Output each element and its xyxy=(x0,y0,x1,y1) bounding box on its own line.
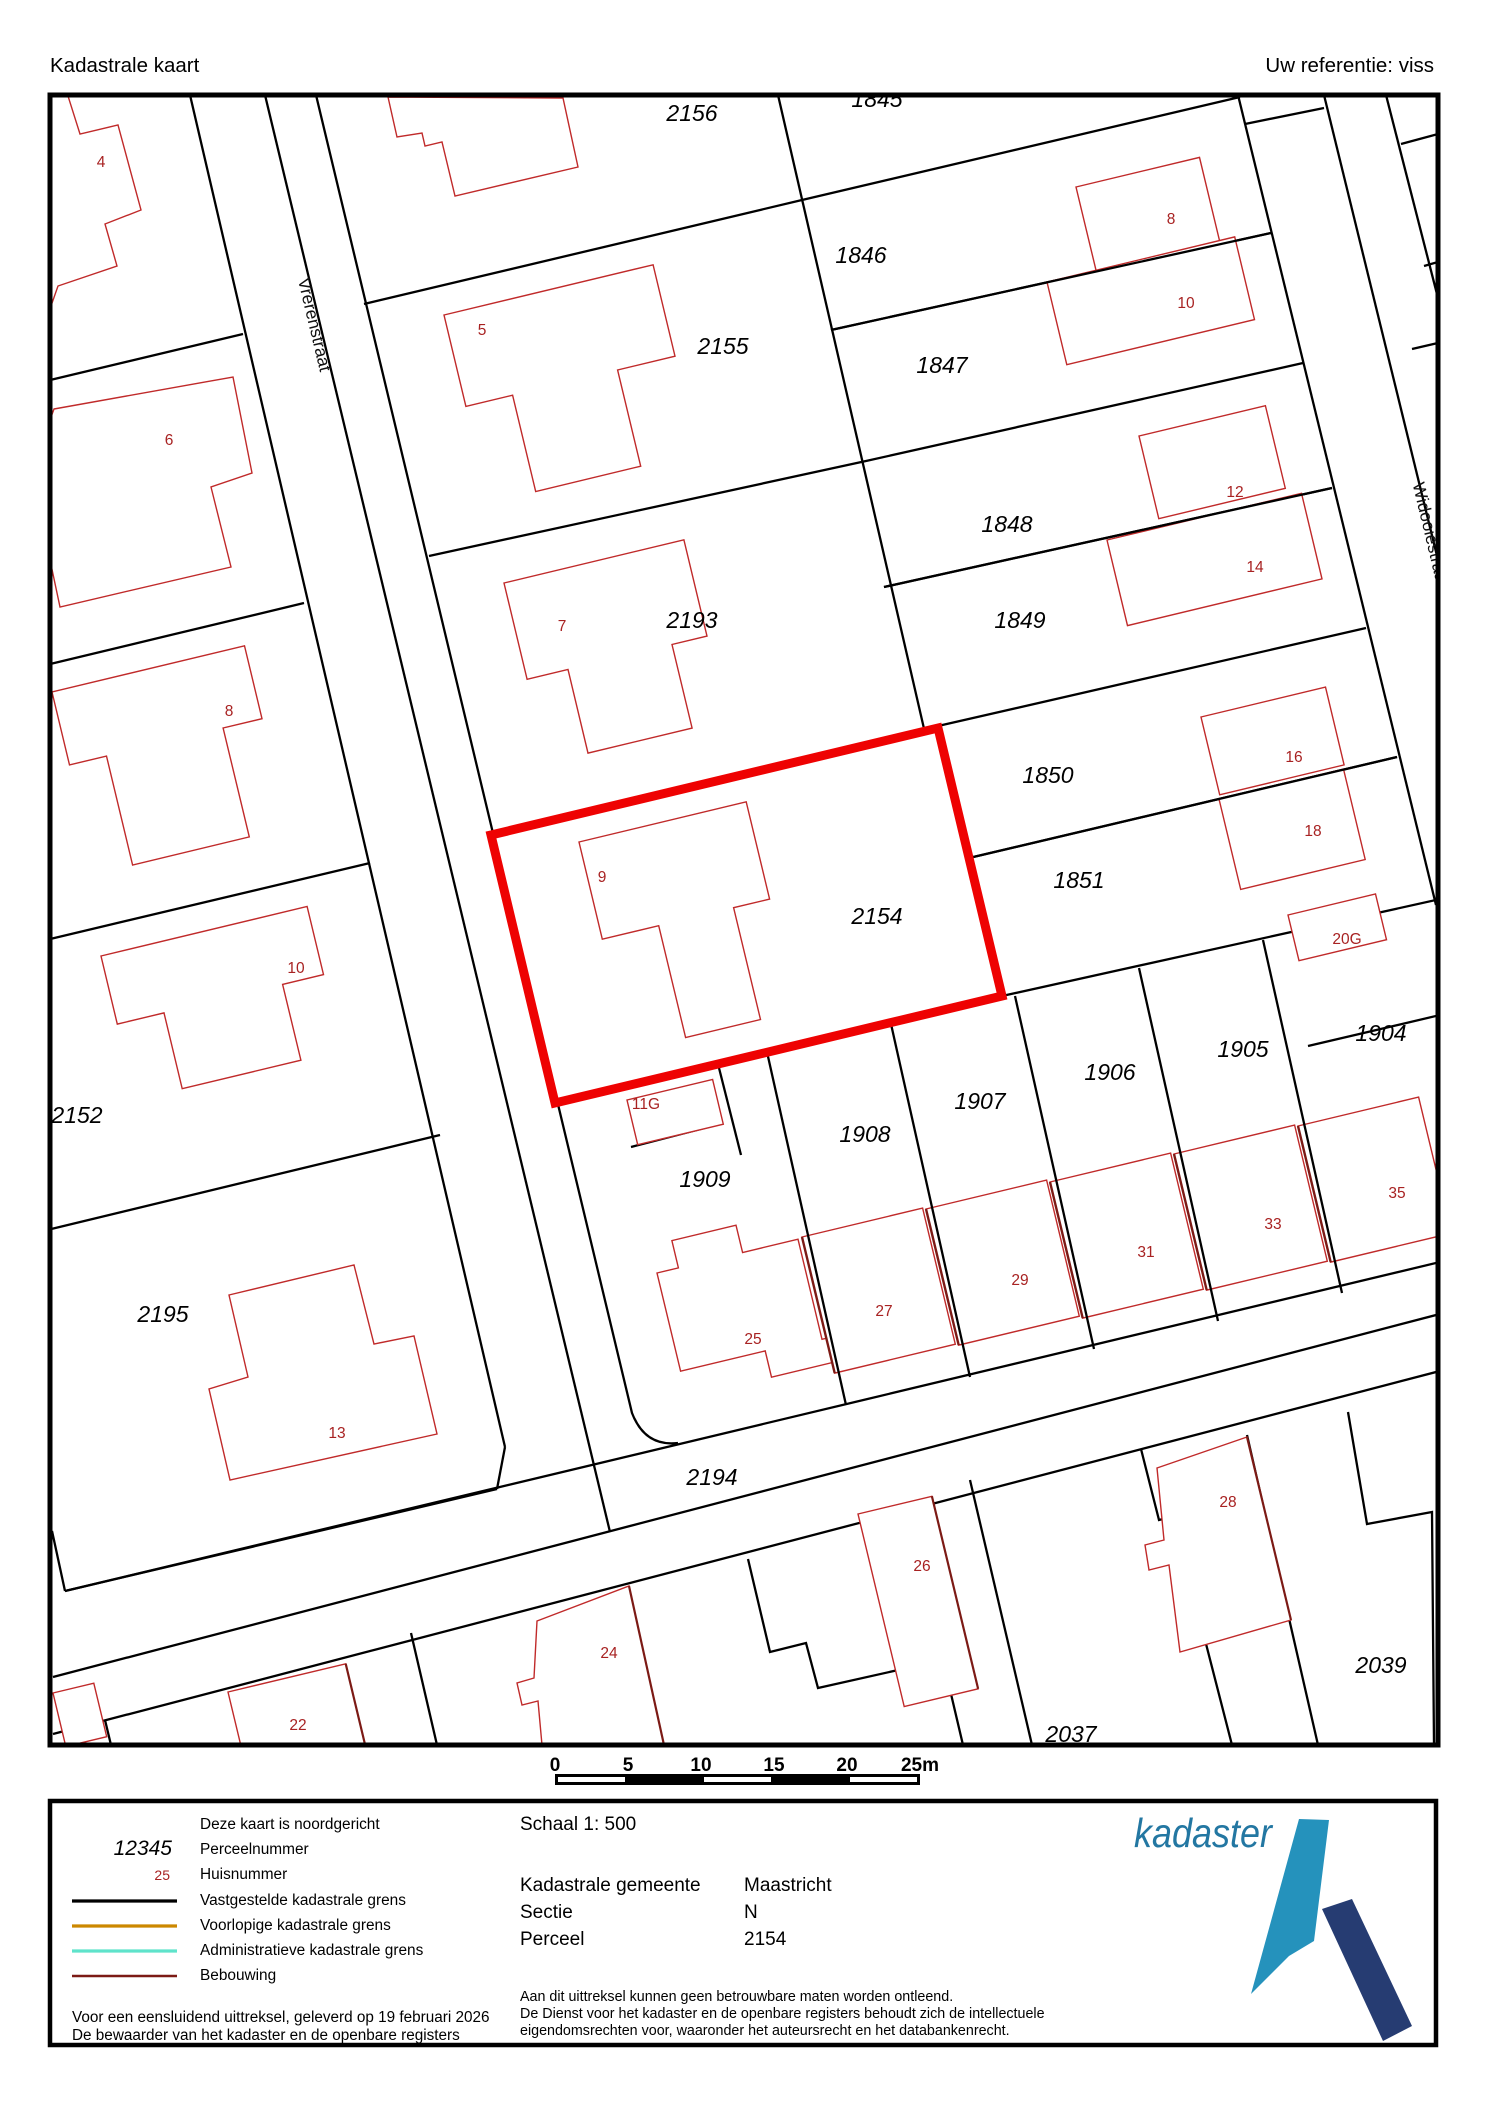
svg-text:1907: 1907 xyxy=(954,1088,1006,1114)
svg-text:10: 10 xyxy=(287,960,305,977)
svg-text:Deze kaart is noordgericht: Deze kaart is noordgericht xyxy=(200,1816,380,1833)
svg-text:1851: 1851 xyxy=(1053,867,1104,893)
svg-text:Vastgestelde kadastrale grens: Vastgestelde kadastrale grens xyxy=(200,1892,406,1909)
svg-text:1904: 1904 xyxy=(1355,1020,1406,1046)
svg-text:33: 33 xyxy=(1264,1216,1281,1233)
svg-text:12345: 12345 xyxy=(114,1837,173,1860)
svg-text:31: 31 xyxy=(1137,1244,1154,1261)
svg-text:2155: 2155 xyxy=(696,333,748,359)
svg-text:6: 6 xyxy=(165,432,174,449)
svg-text:20G: 20G xyxy=(1332,931,1361,948)
svg-text:22: 22 xyxy=(289,1717,306,1734)
svg-text:8: 8 xyxy=(1167,211,1176,228)
svg-text:kadaster: kadaster xyxy=(1134,1810,1274,1856)
svg-text:14: 14 xyxy=(1246,559,1264,576)
svg-text:Voor een eensluidend uittrekse: Voor een eensluidend uittreksel, gelever… xyxy=(72,2009,490,2026)
svg-text:10: 10 xyxy=(1177,295,1195,312)
svg-text:11G: 11G xyxy=(632,1096,660,1113)
svg-text:24: 24 xyxy=(600,1645,618,1662)
svg-text:0: 0 xyxy=(550,1755,561,1776)
svg-text:Kadastrale kaart: Kadastrale kaart xyxy=(50,54,200,77)
svg-text:26: 26 xyxy=(913,1558,930,1575)
svg-text:2154: 2154 xyxy=(850,903,902,929)
svg-text:2152: 2152 xyxy=(50,1102,102,1128)
svg-text:1849: 1849 xyxy=(994,607,1045,633)
svg-text:2195: 2195 xyxy=(136,1301,188,1327)
svg-text:2194: 2194 xyxy=(685,1464,737,1490)
svg-text:7: 7 xyxy=(558,618,567,635)
svg-text:5: 5 xyxy=(478,322,487,339)
svg-text:Uw referentie: viss: Uw referentie: viss xyxy=(1265,54,1434,77)
svg-text:1905: 1905 xyxy=(1217,1036,1268,1062)
svg-text:Voorlopige kadastrale grens: Voorlopige kadastrale grens xyxy=(200,1917,391,1934)
svg-text:1906: 1906 xyxy=(1084,1059,1135,1085)
svg-text:Kadastrale gemeente: Kadastrale gemeente xyxy=(520,1875,701,1896)
svg-text:25m: 25m xyxy=(901,1755,939,1776)
svg-text:N: N xyxy=(744,1902,758,1923)
svg-text:27: 27 xyxy=(875,1303,892,1320)
svg-text:Perceelnummer: Perceelnummer xyxy=(200,1841,309,1858)
svg-text:4: 4 xyxy=(97,154,106,171)
svg-text:1846: 1846 xyxy=(835,242,886,268)
svg-text:Aan dit uittreksel kunnen geen: Aan dit uittreksel kunnen geen betrouwba… xyxy=(520,1989,953,2005)
svg-text:1908: 1908 xyxy=(839,1121,890,1147)
svg-text:13: 13 xyxy=(328,1425,345,1442)
svg-text:De Dienst voor het kadaster en: De Dienst voor het kadaster en de openba… xyxy=(520,2006,1045,2022)
svg-text:5: 5 xyxy=(623,1755,634,1776)
svg-text:25: 25 xyxy=(154,1867,170,1883)
svg-text:Schaal 1: 500: Schaal 1: 500 xyxy=(520,1814,636,1835)
svg-text:35: 35 xyxy=(1388,1185,1405,1202)
svg-text:1909: 1909 xyxy=(679,1166,730,1192)
svg-text:Bebouwing: Bebouwing xyxy=(200,1967,276,1984)
svg-text:eigendomsrechten voor, waarond: eigendomsrechten voor, waaronder het aut… xyxy=(520,2023,1010,2039)
svg-text:De bewaarder van het kadaster: De bewaarder van het kadaster en de open… xyxy=(72,2027,460,2044)
svg-text:1850: 1850 xyxy=(1022,762,1073,788)
svg-text:12: 12 xyxy=(1226,484,1243,501)
svg-text:Maastricht: Maastricht xyxy=(744,1875,832,1896)
svg-text:2154: 2154 xyxy=(744,1929,787,1950)
svg-text:2193: 2193 xyxy=(665,607,717,633)
svg-text:8: 8 xyxy=(225,703,234,720)
svg-text:20: 20 xyxy=(836,1755,857,1776)
svg-text:10: 10 xyxy=(690,1755,711,1776)
svg-text:Perceel: Perceel xyxy=(520,1929,584,1950)
svg-text:9: 9 xyxy=(598,869,607,886)
svg-text:16: 16 xyxy=(1285,749,1302,766)
svg-text:29: 29 xyxy=(1011,1272,1028,1289)
svg-text:Sectie: Sectie xyxy=(520,1902,573,1923)
svg-text:Administratieve kadastrale gre: Administratieve kadastrale grens xyxy=(200,1942,424,1959)
svg-text:1848: 1848 xyxy=(981,511,1032,537)
svg-text:2039: 2039 xyxy=(1354,1652,1406,1678)
svg-text:1847: 1847 xyxy=(916,352,968,378)
svg-text:18: 18 xyxy=(1304,823,1321,840)
svg-text:15: 15 xyxy=(763,1755,785,1776)
svg-text:28: 28 xyxy=(1219,1494,1236,1511)
svg-text:2156: 2156 xyxy=(665,100,717,126)
svg-text:25: 25 xyxy=(744,1331,761,1348)
svg-text:Huisnummer: Huisnummer xyxy=(200,1866,287,1883)
